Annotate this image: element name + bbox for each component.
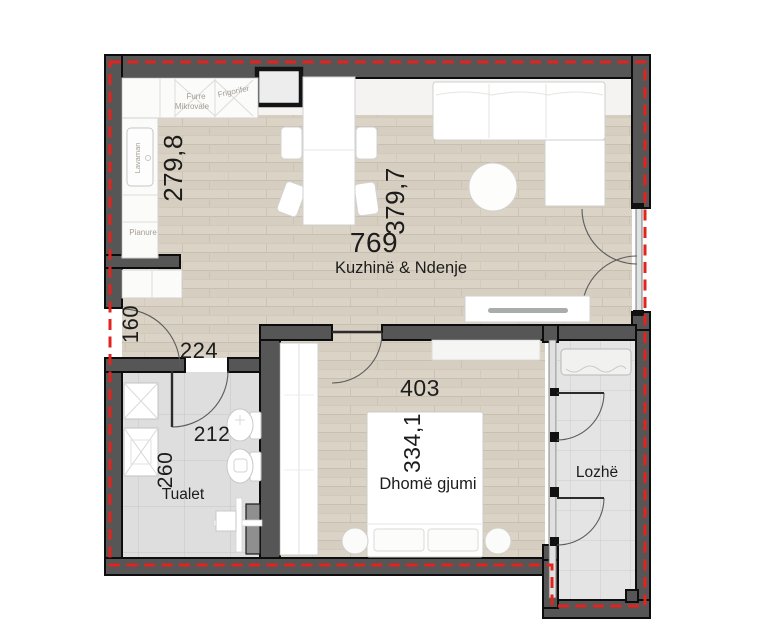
loggia-bench [561, 349, 631, 375]
nightstand [485, 528, 511, 554]
door-jamb-top [633, 203, 644, 209]
label-hob: Pianure [129, 228, 157, 237]
wall-left-lower [105, 366, 122, 575]
living-balcony-door [633, 203, 644, 316]
chair [356, 127, 377, 159]
wall-right-upper [632, 55, 650, 208]
floor-plan-canvas: 279,8 379,7 769 160 224 212 260 403 334,… [0, 0, 780, 638]
dim-hall-vertical: 160 [118, 305, 143, 343]
room-label-living: Kuzhinë & Ndenje [335, 259, 467, 277]
label-sink: Lavaman [133, 143, 142, 174]
wall-bedroom-east-top-block [543, 325, 558, 342]
dining-table [303, 77, 355, 225]
wall-bathroom-top-left [105, 358, 185, 372]
room-label-loggia: Lozhë [576, 464, 618, 481]
sofa-chaise [545, 140, 605, 206]
door-jamb-bottom [633, 310, 644, 316]
nightstand [342, 528, 368, 554]
dim-living-area: 769 [350, 227, 398, 258]
bidet-icon [227, 409, 261, 441]
washing-machine-icon [124, 383, 158, 419]
dim-bathroom-width: 212 [194, 423, 231, 446]
wall-left-upper [105, 55, 122, 308]
shower-tray-icon [124, 428, 158, 476]
toilet-icon [227, 449, 261, 483]
bedroom-shelf [432, 340, 540, 360]
chair [281, 127, 302, 159]
label-oven-line2: Mikrovale [175, 102, 210, 111]
dim-bedroom-width: 403 [400, 375, 440, 401]
tv-stand [465, 296, 590, 322]
wall-bottom-main [105, 558, 558, 575]
chair [354, 182, 379, 217]
room-label-bedroom: Dhomë gjumi [379, 475, 476, 493]
label-oven-line1: Furre [186, 92, 206, 101]
dim-bedroom-height: 334,1 [399, 413, 425, 473]
wall-loggia-inner-stub [626, 590, 638, 602]
wall-bathroom-east [260, 340, 280, 558]
window-glazing [549, 340, 556, 598]
loggia-furniture [561, 349, 631, 375]
french-door-glazing [636, 208, 642, 312]
wall-living-bedroom-right [382, 325, 636, 340]
column-shaft [257, 69, 301, 105]
dim-hall-horizontal: 224 [180, 338, 218, 363]
wardrobe [280, 343, 318, 555]
dim-kitchen-left: 279,8 [158, 134, 188, 202]
wall-top [105, 55, 650, 78]
room-label-bathroom: Tualet [162, 486, 205, 503]
dim-bathroom-height: 260 [154, 452, 177, 489]
dim-living-right: 379,7 [380, 167, 410, 235]
wall-loggia-east [636, 330, 650, 618]
coffee-table [469, 163, 517, 211]
tv-icon [488, 308, 568, 313]
wall-living-bedroom-left [260, 325, 332, 340]
floor-plan: 279,8 379,7 769 160 224 212 260 403 334,… [0, 0, 780, 638]
